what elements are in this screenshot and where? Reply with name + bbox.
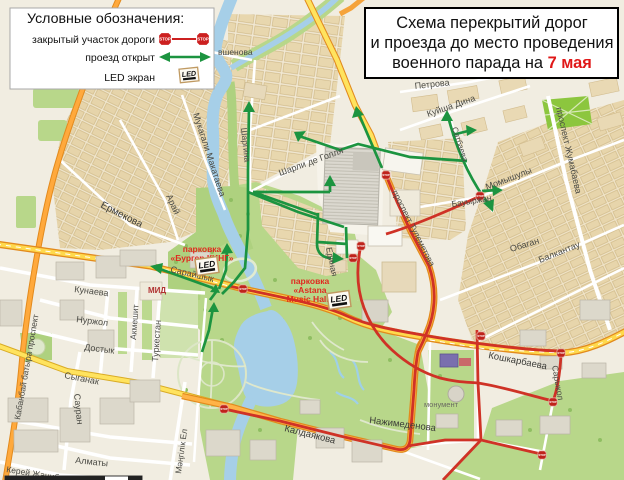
svg-text:монумент: монумент (424, 400, 459, 409)
svg-text:LED экран: LED экран (104, 72, 155, 84)
svg-text:военного парада на 7 мая: военного парада на 7 мая (392, 54, 592, 72)
svg-text:проезд открыт: проезд открыт (85, 52, 155, 64)
svg-text:Схема перекрытий дорог: Схема перекрытий дорог (396, 14, 587, 32)
svg-text:МИД: МИД (148, 286, 166, 295)
svg-text:закрытый участок дороги: закрытый участок дороги (32, 34, 155, 46)
svg-text:Условные обозначения:: Условные обозначения: (27, 11, 184, 27)
svg-text:вшенова: вшенова (218, 47, 253, 57)
svg-text:и проезда до место проведения: и проезда до место проведения (371, 34, 614, 52)
